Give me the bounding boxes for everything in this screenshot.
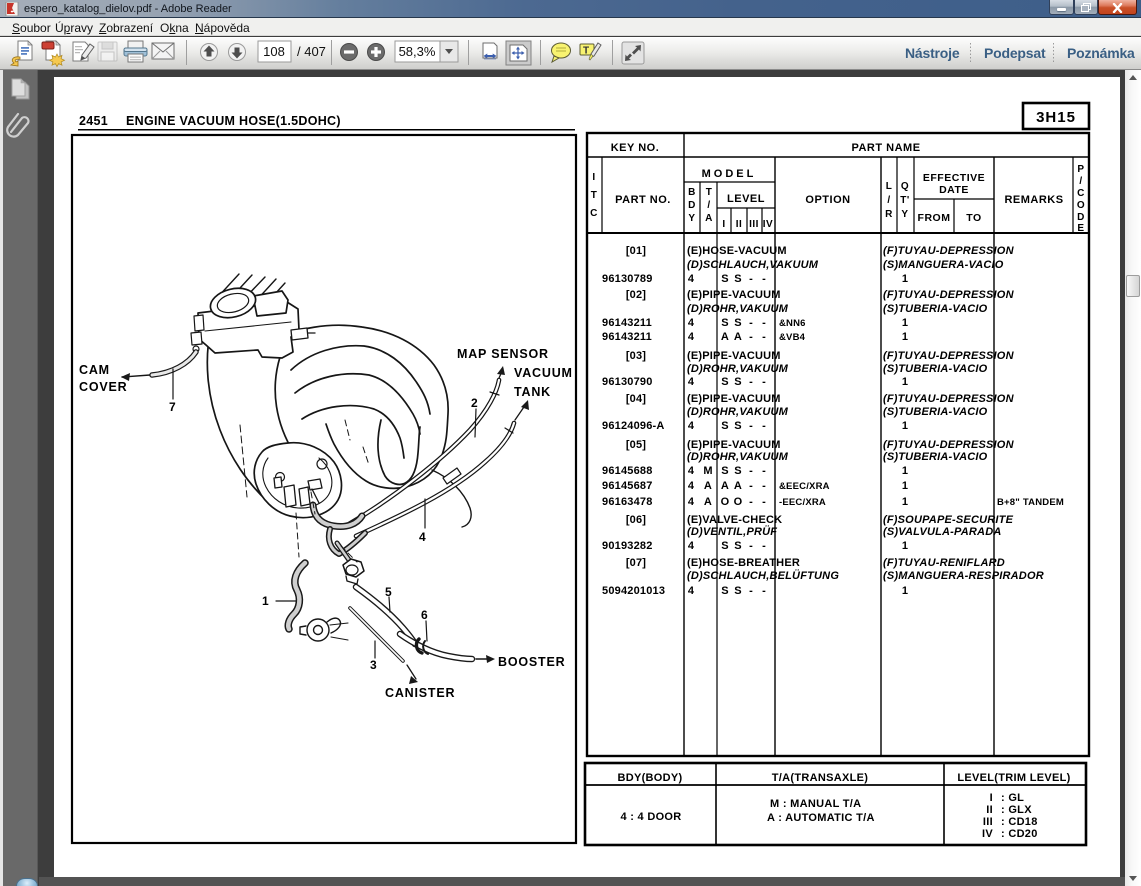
svg-text:REMARKS: REMARKS bbox=[1004, 194, 1063, 206]
svg-text:S: S bbox=[721, 317, 729, 329]
svg-text:(E)HOSE-BREATHER: (E)HOSE-BREATHER bbox=[687, 557, 800, 569]
svg-text:90193282: 90193282 bbox=[602, 540, 653, 552]
svg-text:(F)TUYAU-DEPRESSION: (F)TUYAU-DEPRESSION bbox=[883, 245, 1015, 257]
svg-text:KEY NO.: KEY NO. bbox=[611, 142, 660, 154]
svg-text:C: C bbox=[1077, 188, 1085, 199]
svg-text:(D)ROHR,VAKUUM: (D)ROHR,VAKUUM bbox=[687, 406, 789, 418]
svg-text:&NN6: &NN6 bbox=[779, 318, 806, 329]
svg-text:Poznámka: Poznámka bbox=[1067, 45, 1135, 61]
svg-text:Podepsat: Podepsat bbox=[984, 45, 1046, 61]
svg-text:T: T bbox=[591, 190, 598, 201]
svg-text:S: S bbox=[734, 376, 742, 388]
svg-text:A: A bbox=[734, 480, 742, 492]
svg-text:S: S bbox=[734, 585, 742, 597]
svg-text:-: - bbox=[749, 585, 753, 597]
svg-text:II: II bbox=[736, 219, 743, 230]
svg-text:I: I bbox=[592, 172, 595, 183]
svg-text:96143211: 96143211 bbox=[602, 331, 652, 343]
svg-text:I: I bbox=[722, 219, 725, 230]
svg-text:-EEC/XRA: -EEC/XRA bbox=[779, 497, 826, 508]
svg-text:S: S bbox=[721, 376, 729, 388]
svg-text:5094201013: 5094201013 bbox=[602, 585, 665, 597]
svg-text:D: D bbox=[688, 200, 696, 211]
svg-text:(E)HOSE-VACUUM: (E)HOSE-VACUUM bbox=[687, 245, 787, 257]
svg-text:PART NO.: PART NO. bbox=[615, 194, 671, 206]
svg-text:M : MANUAL T/A: M : MANUAL T/A bbox=[770, 798, 861, 810]
svg-text:4: 4 bbox=[688, 540, 695, 552]
svg-text:FROM: FROM bbox=[918, 212, 951, 224]
svg-text:A: A bbox=[704, 496, 712, 508]
svg-text:II: II bbox=[986, 804, 993, 816]
svg-text:4: 4 bbox=[419, 530, 426, 544]
svg-text:/: / bbox=[707, 200, 710, 211]
svg-text:-: - bbox=[749, 540, 753, 552]
svg-text:(F)TUYAU-RENIFLARD: (F)TUYAU-RENIFLARD bbox=[883, 557, 1005, 569]
svg-text:Y: Y bbox=[901, 209, 908, 220]
svg-text:1: 1 bbox=[902, 376, 908, 388]
svg-text:BOOSTER: BOOSTER bbox=[498, 655, 565, 669]
svg-text:S: S bbox=[721, 540, 729, 552]
svg-text:(S)TUBERIA-VACIO: (S)TUBERIA-VACIO bbox=[883, 303, 988, 315]
svg-text:-: - bbox=[749, 331, 753, 343]
svg-text:/: / bbox=[887, 195, 890, 206]
svg-text:(D)SCHLAUCH,VAKUUM: (D)SCHLAUCH,VAKUUM bbox=[687, 259, 819, 271]
svg-text:T': T' bbox=[900, 195, 910, 206]
svg-text:III: III bbox=[749, 219, 759, 230]
svg-text:[01]: [01] bbox=[626, 245, 646, 257]
svg-text:T: T bbox=[706, 187, 713, 198]
svg-text:1: 1 bbox=[902, 540, 908, 552]
svg-text:TO: TO bbox=[966, 212, 981, 224]
svg-text:LEVEL(TRIM LEVEL): LEVEL(TRIM LEVEL) bbox=[957, 772, 1070, 784]
svg-text:III: III bbox=[983, 816, 993, 828]
svg-text:PART NAME: PART NAME bbox=[851, 142, 920, 154]
svg-text:Y: Y bbox=[688, 213, 695, 224]
svg-text:(S)TUBERIA-VACIO: (S)TUBERIA-VACIO bbox=[883, 406, 988, 418]
svg-text:4: 4 bbox=[688, 480, 695, 492]
svg-text:96145688: 96145688 bbox=[602, 465, 653, 477]
svg-text:96130789: 96130789 bbox=[602, 273, 653, 285]
svg-text:[04]: [04] bbox=[626, 393, 646, 405]
svg-text:&EEC/XRA: &EEC/XRA bbox=[779, 481, 830, 492]
svg-text:&VB4: &VB4 bbox=[779, 332, 806, 343]
svg-text:[03]: [03] bbox=[626, 350, 646, 362]
svg-text:3: 3 bbox=[370, 658, 377, 672]
svg-text:S: S bbox=[734, 273, 742, 285]
svg-text:(E)PIPE-VACUUM: (E)PIPE-VACUUM bbox=[687, 289, 781, 301]
svg-text:2451: 2451 bbox=[79, 114, 108, 128]
svg-text:-: - bbox=[762, 496, 766, 508]
svg-text:D: D bbox=[1077, 212, 1085, 223]
svg-text:VACUUM: VACUUM bbox=[514, 366, 573, 380]
svg-text:7: 7 bbox=[169, 400, 176, 414]
svg-text:[02]: [02] bbox=[626, 289, 646, 301]
svg-text:-: - bbox=[749, 496, 753, 508]
svg-text:A: A bbox=[721, 480, 729, 492]
svg-text:COVER: COVER bbox=[79, 380, 127, 394]
svg-text:[06]: [06] bbox=[626, 514, 646, 526]
svg-text:CAM: CAM bbox=[79, 363, 110, 377]
svg-text:(F)TUYAU-DEPRESSION: (F)TUYAU-DEPRESSION bbox=[883, 350, 1015, 362]
svg-text:B: B bbox=[688, 187, 696, 198]
svg-text:M: M bbox=[703, 465, 712, 477]
svg-text:1: 1 bbox=[902, 496, 908, 508]
svg-text:96163478: 96163478 bbox=[602, 496, 653, 508]
svg-text:(F)TUYAU-DEPRESSION: (F)TUYAU-DEPRESSION bbox=[883, 393, 1015, 405]
svg-text:(D)ROHR,VAKUUM: (D)ROHR,VAKUUM bbox=[687, 303, 789, 315]
svg-text:-: - bbox=[762, 465, 766, 477]
svg-text:-: - bbox=[749, 376, 753, 388]
svg-text:O: O bbox=[734, 496, 743, 508]
svg-text:(F)TUYAU-DEPRESSION: (F)TUYAU-DEPRESSION bbox=[883, 289, 1015, 301]
svg-text:MODEL: MODEL bbox=[702, 168, 757, 180]
svg-text:(E)PIPE-VACUUM: (E)PIPE-VACUUM bbox=[687, 439, 781, 451]
svg-text:4 : 4 DOOR: 4 : 4 DOOR bbox=[620, 811, 681, 823]
svg-text:2: 2 bbox=[471, 396, 478, 410]
svg-text:1: 1 bbox=[902, 273, 908, 285]
svg-text:CANISTER: CANISTER bbox=[385, 686, 455, 700]
svg-text:OPTION: OPTION bbox=[805, 194, 850, 206]
svg-text:S: S bbox=[721, 273, 729, 285]
svg-text:(D)SCHLAUCH,BELÜFTUNG: (D)SCHLAUCH,BELÜFTUNG bbox=[687, 569, 839, 582]
svg-text:IV: IV bbox=[982, 828, 993, 840]
svg-text:(D)ROHR,VAKUUM: (D)ROHR,VAKUUM bbox=[687, 363, 789, 375]
svg-text:S: S bbox=[734, 317, 742, 329]
svg-text:O: O bbox=[721, 496, 730, 508]
svg-text:TANK: TANK bbox=[514, 385, 551, 399]
svg-text:/ 407: / 407 bbox=[297, 44, 326, 59]
svg-text:4: 4 bbox=[688, 331, 695, 343]
svg-text:1: 1 bbox=[902, 317, 908, 329]
svg-text:-: - bbox=[762, 420, 766, 432]
svg-text:4: 4 bbox=[688, 496, 695, 508]
svg-text:O: O bbox=[1077, 200, 1085, 211]
svg-text:C: C bbox=[590, 208, 598, 219]
svg-text:/: / bbox=[1079, 176, 1082, 187]
svg-text:-: - bbox=[762, 331, 766, 343]
svg-text:3H15: 3H15 bbox=[1036, 109, 1076, 126]
svg-text:4: 4 bbox=[688, 317, 695, 329]
svg-text:E: E bbox=[1077, 223, 1084, 234]
svg-text:A: A bbox=[734, 331, 742, 343]
svg-text:-: - bbox=[749, 480, 753, 492]
svg-text:S: S bbox=[734, 420, 742, 432]
svg-text:: CD18: : CD18 bbox=[1001, 816, 1038, 828]
svg-text:(S)TUBERIA-VACIO: (S)TUBERIA-VACIO bbox=[883, 451, 988, 463]
svg-text:T: T bbox=[583, 46, 589, 57]
svg-text:[05]: [05] bbox=[626, 439, 646, 451]
svg-text:S: S bbox=[721, 420, 729, 432]
svg-text:-: - bbox=[762, 317, 766, 329]
svg-text:-: - bbox=[762, 480, 766, 492]
svg-text:-: - bbox=[749, 273, 753, 285]
svg-text:EFFECTIVE: EFFECTIVE bbox=[923, 172, 985, 184]
svg-text:4: 4 bbox=[688, 420, 695, 432]
svg-text:: GL: : GL bbox=[1001, 792, 1024, 804]
svg-text:B+8" TANDEM: B+8" TANDEM bbox=[997, 497, 1064, 508]
svg-text:-: - bbox=[749, 317, 753, 329]
svg-text:: CD20: : CD20 bbox=[1001, 828, 1038, 840]
svg-text:1: 1 bbox=[902, 465, 908, 477]
svg-text:Q: Q bbox=[901, 181, 909, 192]
svg-text:ENGINE VACUUM HOSE(1.5DOHC): ENGINE VACUUM HOSE(1.5DOHC) bbox=[126, 114, 341, 128]
svg-text:(D)ROHR,VAKUUM: (D)ROHR,VAKUUM bbox=[687, 451, 789, 463]
svg-text:(S)TUBERIA-VACIO: (S)TUBERIA-VACIO bbox=[883, 363, 988, 375]
svg-text:: GLX: : GLX bbox=[1001, 804, 1032, 816]
svg-text:(E)PIPE-VACUUM: (E)PIPE-VACUUM bbox=[687, 393, 781, 405]
svg-text:1: 1 bbox=[902, 420, 908, 432]
svg-text:A: A bbox=[705, 213, 713, 224]
svg-text:96130790: 96130790 bbox=[602, 376, 653, 388]
svg-text:R: R bbox=[885, 209, 893, 220]
svg-text:A: A bbox=[704, 480, 712, 492]
svg-text:S: S bbox=[721, 465, 729, 477]
svg-text:MAP SENSOR: MAP SENSOR bbox=[457, 347, 549, 361]
svg-text:Nástroje: Nástroje bbox=[905, 45, 960, 61]
svg-text:-: - bbox=[762, 376, 766, 388]
svg-text:1: 1 bbox=[902, 480, 908, 492]
svg-text:(F)SOUPAPE-SECURITE: (F)SOUPAPE-SECURITE bbox=[883, 514, 1014, 526]
svg-text:-: - bbox=[762, 585, 766, 597]
svg-text:4: 4 bbox=[688, 585, 695, 597]
svg-text:T/A(TRANSAXLE): T/A(TRANSAXLE) bbox=[772, 772, 869, 784]
svg-text:-: - bbox=[762, 540, 766, 552]
svg-text:(S)MANGUERA-VACIO: (S)MANGUERA-VACIO bbox=[883, 259, 1004, 271]
svg-text:S: S bbox=[734, 540, 742, 552]
svg-text:P: P bbox=[1077, 164, 1084, 175]
svg-text:A : AUTOMATIC T/A: A : AUTOMATIC T/A bbox=[767, 812, 875, 824]
svg-text:96124096-A: 96124096-A bbox=[602, 420, 665, 432]
svg-text:4: 4 bbox=[688, 273, 695, 285]
svg-text:-: - bbox=[749, 420, 753, 432]
svg-text:1: 1 bbox=[902, 585, 908, 597]
svg-text:108: 108 bbox=[263, 44, 285, 59]
svg-text:96143211: 96143211 bbox=[602, 317, 652, 329]
svg-text:DATE: DATE bbox=[939, 184, 969, 196]
svg-text:(D)VENTIL,PRÜF: (D)VENTIL,PRÜF bbox=[687, 525, 777, 538]
svg-text:S: S bbox=[734, 465, 742, 477]
svg-text:1: 1 bbox=[262, 594, 269, 608]
svg-text:96145687: 96145687 bbox=[602, 480, 653, 492]
svg-text:4: 4 bbox=[688, 376, 695, 388]
svg-text:BDY(BODY): BDY(BODY) bbox=[617, 772, 682, 784]
svg-text:4: 4 bbox=[688, 465, 695, 477]
svg-text:[07]: [07] bbox=[626, 557, 646, 569]
svg-text:L: L bbox=[886, 181, 893, 192]
svg-text:5: 5 bbox=[385, 585, 392, 599]
svg-text:IV: IV bbox=[763, 219, 773, 230]
svg-text:I: I bbox=[990, 792, 993, 804]
svg-text:-: - bbox=[749, 465, 753, 477]
svg-text:(E)VALVE-CHECK: (E)VALVE-CHECK bbox=[687, 514, 782, 526]
svg-text:1: 1 bbox=[902, 331, 908, 343]
svg-text:(E)PIPE-VACUUM: (E)PIPE-VACUUM bbox=[687, 350, 781, 362]
svg-text:LEVEL: LEVEL bbox=[727, 193, 765, 205]
svg-text:6: 6 bbox=[421, 608, 428, 622]
svg-text:(S)MANGUERA-RESPIRADOR: (S)MANGUERA-RESPIRADOR bbox=[883, 570, 1044, 582]
svg-text:-: - bbox=[762, 273, 766, 285]
svg-text:S: S bbox=[721, 585, 729, 597]
svg-text:(S)VALVULA-PARADA: (S)VALVULA-PARADA bbox=[883, 526, 1002, 538]
svg-text:A: A bbox=[721, 331, 729, 343]
svg-text:(F)TUYAU-DEPRESSION: (F)TUYAU-DEPRESSION bbox=[883, 439, 1015, 451]
svg-text:58,3%: 58,3% bbox=[399, 44, 436, 59]
